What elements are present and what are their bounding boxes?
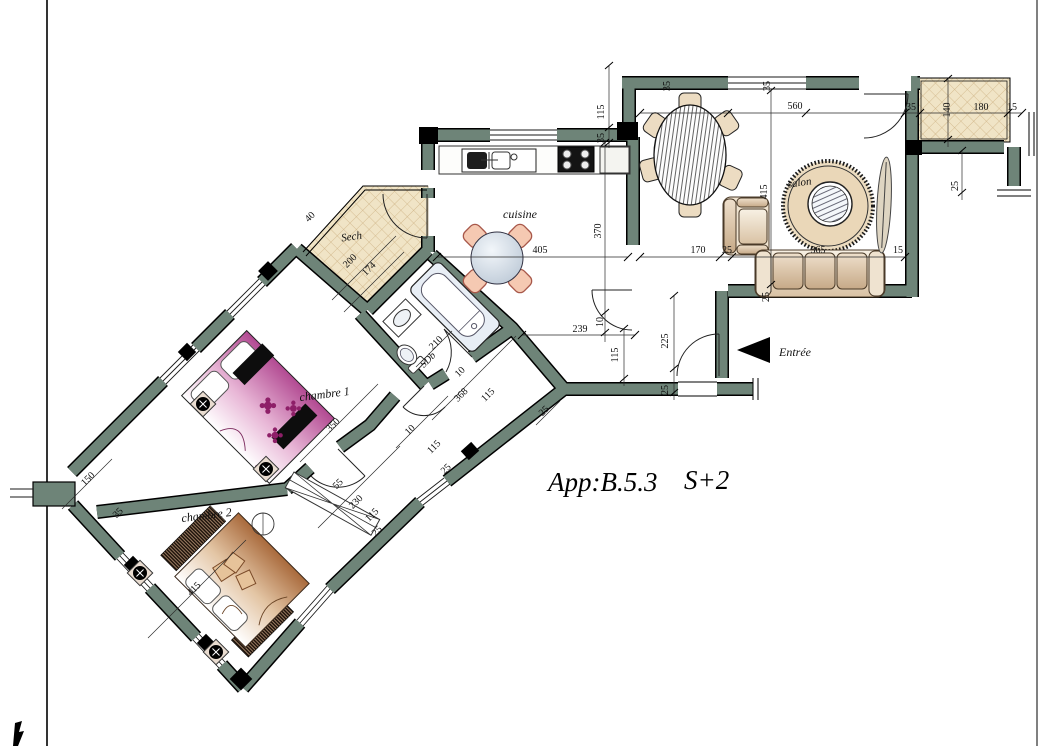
dimension-label: 35 <box>762 81 773 91</box>
entrance-arrow-icon <box>737 337 770 363</box>
dimension-label: 115 <box>596 105 607 120</box>
dimension-label: 35 <box>662 81 673 91</box>
bedroom1-door <box>403 386 445 416</box>
dimension-label: 15 <box>1007 102 1017 113</box>
dimension-label: 170 <box>691 245 706 256</box>
apartment-title: App:B.5.3 <box>546 467 657 497</box>
kitchen-unit <box>600 147 629 173</box>
label-entrance: Entrée <box>778 345 812 359</box>
dimension-label: 115 <box>425 438 443 456</box>
dimension-label: 415 <box>759 185 770 200</box>
label-kitchen: cuisine <box>503 207 538 221</box>
washbasin-icon <box>383 299 421 337</box>
dimension-label: 115 <box>479 386 497 404</box>
dimension-label: 370 <box>593 224 604 239</box>
dimension-label: 35 <box>906 102 916 113</box>
round-rug <box>783 161 873 251</box>
apartment-type: S+2 <box>684 465 729 495</box>
dimension-label: 560 <box>788 101 803 112</box>
floor-plan-sheet: 1153535560351401801525353704054151702536… <box>0 0 1055 746</box>
dimension-label: 365 <box>811 245 826 256</box>
plant-icon <box>874 157 893 254</box>
kitchen-counter <box>439 146 630 174</box>
dimension-label: 40 <box>303 210 318 225</box>
dimension-label: 25 <box>660 385 671 395</box>
dimension-label: 140 <box>942 103 953 118</box>
label-bedroom1: chambre 1 <box>299 384 351 404</box>
label-bathroom: SDb <box>418 350 438 370</box>
floor-plan-drawing: 1153535560351401801525353704054151702536… <box>0 0 1055 746</box>
dimension-label: 115 <box>610 348 621 363</box>
dimension-label: 25 <box>722 245 732 256</box>
dimension-label: 150 <box>79 470 97 488</box>
dining-table-icon <box>654 105 726 205</box>
balcony-floor <box>918 78 1010 142</box>
dimension-label: 15 <box>893 245 903 256</box>
dimension-label: 25 <box>761 292 772 302</box>
dimension-label: 368 <box>452 386 470 404</box>
dimension-label: 10 <box>403 423 418 438</box>
dimension-label: 180 <box>974 102 989 113</box>
ink-mark <box>13 721 24 746</box>
dimension-label: 405 <box>533 245 548 256</box>
dimension-label: 55 <box>331 477 346 492</box>
dimension-label: 35 <box>596 133 607 143</box>
stove-icon <box>558 147 594 172</box>
balcony-door-opening <box>859 74 911 91</box>
kitchen-table <box>461 222 534 295</box>
dimension-label: 239 <box>573 324 588 335</box>
dimension-label: 225 <box>660 334 671 349</box>
entry-door <box>677 334 719 376</box>
dimension-label: 10 <box>595 317 606 327</box>
dimension-label: 25 <box>950 181 961 191</box>
dimension-label: 10 <box>453 365 468 380</box>
dryer-room-floor <box>303 186 428 310</box>
